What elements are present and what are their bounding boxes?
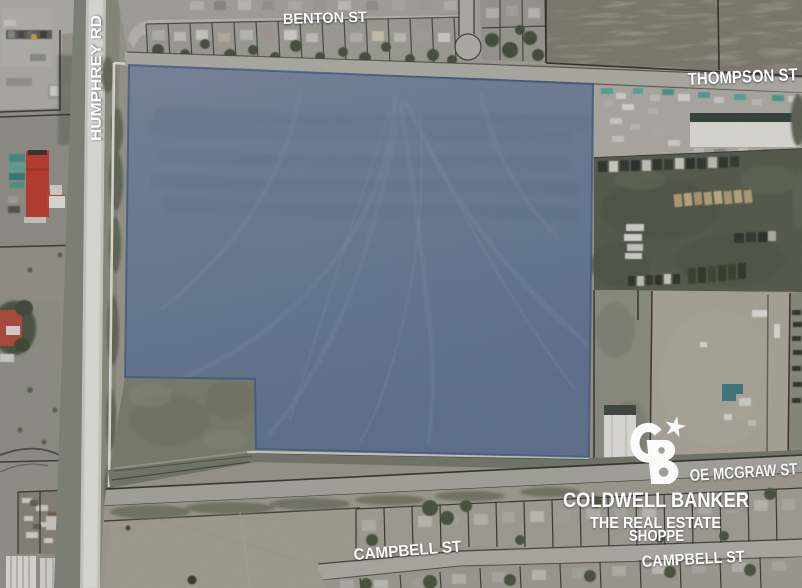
svg-text:SHOPPE: SHOPPE <box>629 528 684 545</box>
svg-text:BENTON ST: BENTON ST <box>283 9 367 28</box>
svg-text:COLDWELL BANKER: COLDWELL BANKER <box>563 488 749 512</box>
svg-text:HUMPHREY RD: HUMPHREY RD <box>88 15 105 141</box>
